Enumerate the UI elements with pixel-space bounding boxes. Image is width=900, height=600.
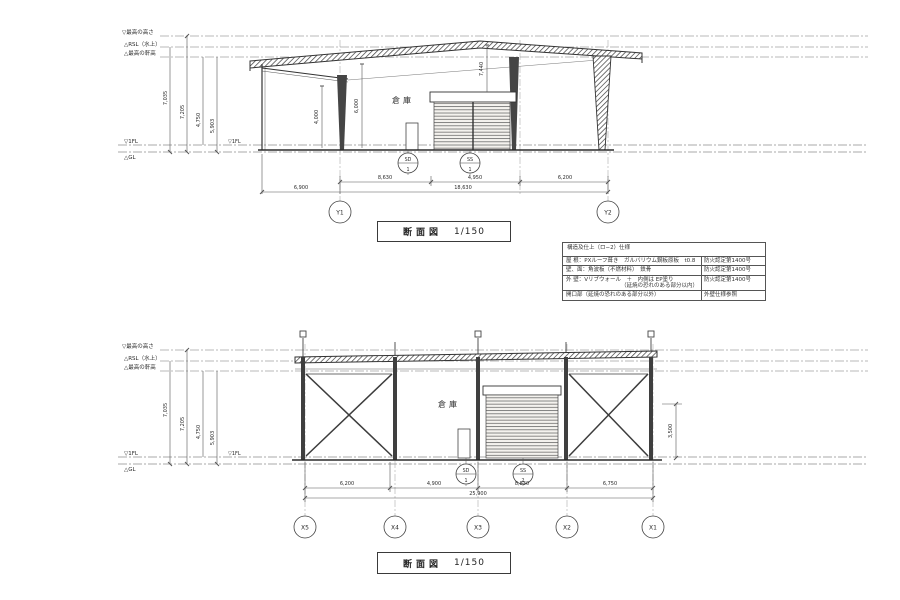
shutter-lintel xyxy=(430,92,516,102)
inner-vdim-label: 6,000 xyxy=(354,99,360,113)
grid-bubble-label: Y2 xyxy=(603,210,612,217)
grid-bubble-label: Y1 xyxy=(335,210,344,217)
datum-label-1fl: ▽1FL xyxy=(124,451,139,457)
bottom-section-title-box: 断面図 1/150 xyxy=(377,552,511,574)
top-grid-bubbles: Y1 Y2 xyxy=(329,201,619,223)
spec-cell-left: 外 壁：Vリブウォール ＋ 内側は EP塗り （延焼の恐れのある部分以内） xyxy=(563,276,702,291)
ceiling-line xyxy=(348,60,598,80)
grid-bubble-label: X5 xyxy=(301,525,309,532)
vdim-label: 4,750 xyxy=(196,425,202,439)
spec-cell-right: 防火認定第1400号 xyxy=(702,276,765,291)
spec-cell-right: 外壁仕様参照 xyxy=(702,291,765,299)
steel-door xyxy=(458,429,470,458)
portal-column xyxy=(509,57,519,150)
shutter-panel xyxy=(434,102,510,150)
top-building: 倉庫 ▽1FL 4,000 6,000 7,440 xyxy=(228,41,642,150)
spec-row: 外 壁：Vリブウォール ＋ 内側は EP塗り （延焼の恐れのある部分以内） 防火… xyxy=(563,275,765,291)
dim-label: 8,630 xyxy=(378,175,392,181)
shutter-tag-code: SS xyxy=(520,468,526,474)
grid-bubble-label: X2 xyxy=(563,525,571,532)
scanned-drawing-page: { "colors": {"ink": "#2b2b2b", "faint": … xyxy=(0,0,900,600)
inner-vdim-label: 4,000 xyxy=(314,110,320,124)
vdim-label: 4,750 xyxy=(196,113,202,127)
right-wall xyxy=(593,56,611,150)
top-section-title: 断面図 xyxy=(403,225,442,238)
door-tag-num: 1 xyxy=(406,167,409,173)
roof-band xyxy=(250,41,642,68)
shutter-tag-num: 1 xyxy=(468,167,471,173)
room-label: 倉庫 xyxy=(438,399,460,409)
dim-label: 18,630 xyxy=(454,185,472,191)
grid-bubble-label: X4 xyxy=(391,525,399,532)
datum-label-eave: △最高の軒高 xyxy=(124,363,156,371)
bottom-building: 倉庫 ▽1FL 3,500 xyxy=(228,331,682,460)
bottom-dimension-labels: 6,200 4,900 8,830 6,750 25,900 xyxy=(340,481,617,497)
dim-label: 6,200 xyxy=(558,175,572,181)
spec-title: 構造及仕上（ロ−2）仕様 xyxy=(563,243,765,256)
spec-table: 構造及仕上（ロ−2）仕様 屋 根：PXルーフ葺き ガルバリウム鋼板原板 t0.8… xyxy=(562,242,766,301)
bottom-section-scale: 1/150 xyxy=(454,558,485,568)
datum-label-max-height: ▽最高の高さ xyxy=(122,342,154,350)
dim-label: 6,200 xyxy=(340,481,354,487)
vdim-label: 7,205 xyxy=(180,417,186,431)
dim-label: 8,830 xyxy=(515,481,529,487)
spec-cell-left-line2: （延焼の恐れのある部分以内） xyxy=(566,283,698,289)
datum-label-rsl: △RSL（水上） xyxy=(124,40,161,48)
dim-label: 25,900 xyxy=(469,491,487,497)
datum-label-max-height: ▽最高の高さ xyxy=(122,28,154,36)
spec-row: 屋 根：PXルーフ葺き ガルバリウム鋼板原板 t0.8 防火認定第1400号 xyxy=(563,256,765,265)
spec-cell-right: 防火認定第1400号 xyxy=(702,266,765,274)
inner-1fl-label: ▽1FL xyxy=(228,451,241,457)
inner-1fl-label: ▽1FL xyxy=(228,139,241,145)
door-tag-num: 1 xyxy=(464,478,467,484)
spec-row: 開口部（延焼の恐れのある部分以外） 外壁仕様参照 xyxy=(563,290,765,299)
top-datum-labels: ▽最高の高さ △RSL（水上） △最高の軒高 ▽1FL △GL xyxy=(122,28,161,161)
datum-label-eave: △最高の軒高 xyxy=(124,49,156,57)
dim-label: 6,900 xyxy=(294,185,308,191)
door-tag-code: SD xyxy=(463,468,470,474)
spec-cell-right: 防火認定第1400号 xyxy=(702,257,765,265)
canopy-top xyxy=(262,68,348,79)
top-section-scale: 1/150 xyxy=(454,227,485,237)
grid-bubble-label: X3 xyxy=(474,525,482,532)
bottom-section-view: ▽最高の高さ △RSL（水上） △最高の軒高 ▽1FL △GL 7,035 7,… xyxy=(118,331,868,538)
vdim-label: 5,903 xyxy=(210,119,216,133)
top-dimension-labels: 8,630 4,950 6,200 6,900 18,630 xyxy=(294,175,572,191)
grid-bubble-label: X1 xyxy=(649,525,657,532)
bottom-left-vertical-dimensions xyxy=(168,348,219,466)
x-brace-bay-right xyxy=(569,374,648,456)
bottom-grid-bubbles: X5 X4 X3 X2 X1 xyxy=(294,516,664,538)
inner-vdim-label: 7,440 xyxy=(479,62,485,76)
right-vdim-label: 3,500 xyxy=(668,424,674,438)
bottom-left-vertical-dimension-labels: 7,035 7,205 4,750 5,903 xyxy=(163,403,216,445)
top-section-view: ▽最高の高さ △RSL（水上） △最高の軒高 ▽1FL △GL 7,035 7,… xyxy=(118,28,868,223)
datum-label-gl: △GL xyxy=(124,467,136,473)
top-door-tags: SD 1 SS 1 xyxy=(398,150,480,175)
vdim-label: 7,205 xyxy=(180,105,186,119)
vdim-label: 5,903 xyxy=(210,431,216,445)
shutter-panel xyxy=(486,395,558,458)
dim-label: 4,900 xyxy=(427,481,441,487)
bottom-section-title: 断面図 xyxy=(403,557,442,570)
spec-cell-left: 開口部（延焼の恐れのある部分以外） xyxy=(563,291,702,299)
steel-door xyxy=(406,123,418,150)
dim-label: 6,750 xyxy=(603,481,617,487)
vdim-label: 7,035 xyxy=(163,91,169,105)
top-left-vertical-dimension-labels: 7,035 7,205 4,750 5,903 xyxy=(163,91,216,133)
interior-column xyxy=(337,75,347,150)
canopy-bottom xyxy=(262,71,348,82)
door-tag-code: SD xyxy=(405,157,412,163)
dim-label: 4,950 xyxy=(468,175,482,181)
datum-label-rsl: △RSL（水上） xyxy=(124,354,161,362)
top-section-title-box: 断面図 1/150 xyxy=(377,221,511,242)
bottom-datum-labels: ▽最高の高さ △RSL（水上） △最高の軒高 ▽1FL △GL xyxy=(122,342,161,473)
x-brace-bay-left xyxy=(306,374,392,456)
room-label: 倉庫 xyxy=(392,95,414,105)
vdim-label: 7,035 xyxy=(163,403,169,417)
spec-cell-left: 屋 根：PXルーフ葺き ガルバリウム鋼板原板 t0.8 xyxy=(563,257,702,265)
spec-cell-left: 壁、面：角波板（不燃材料） 鉄骨 xyxy=(563,266,702,274)
datum-label-1fl: ▽1FL xyxy=(124,139,139,145)
spec-row: 壁、面：角波板（不燃材料） 鉄骨 防火認定第1400号 xyxy=(563,265,765,274)
datum-label-gl: △GL xyxy=(124,155,136,161)
shutter-tag-code: SS xyxy=(467,157,473,163)
top-dimension-rows xyxy=(260,154,610,194)
shutter-lintel xyxy=(483,386,561,395)
columns xyxy=(301,357,653,460)
top-left-vertical-dimensions xyxy=(168,34,219,154)
